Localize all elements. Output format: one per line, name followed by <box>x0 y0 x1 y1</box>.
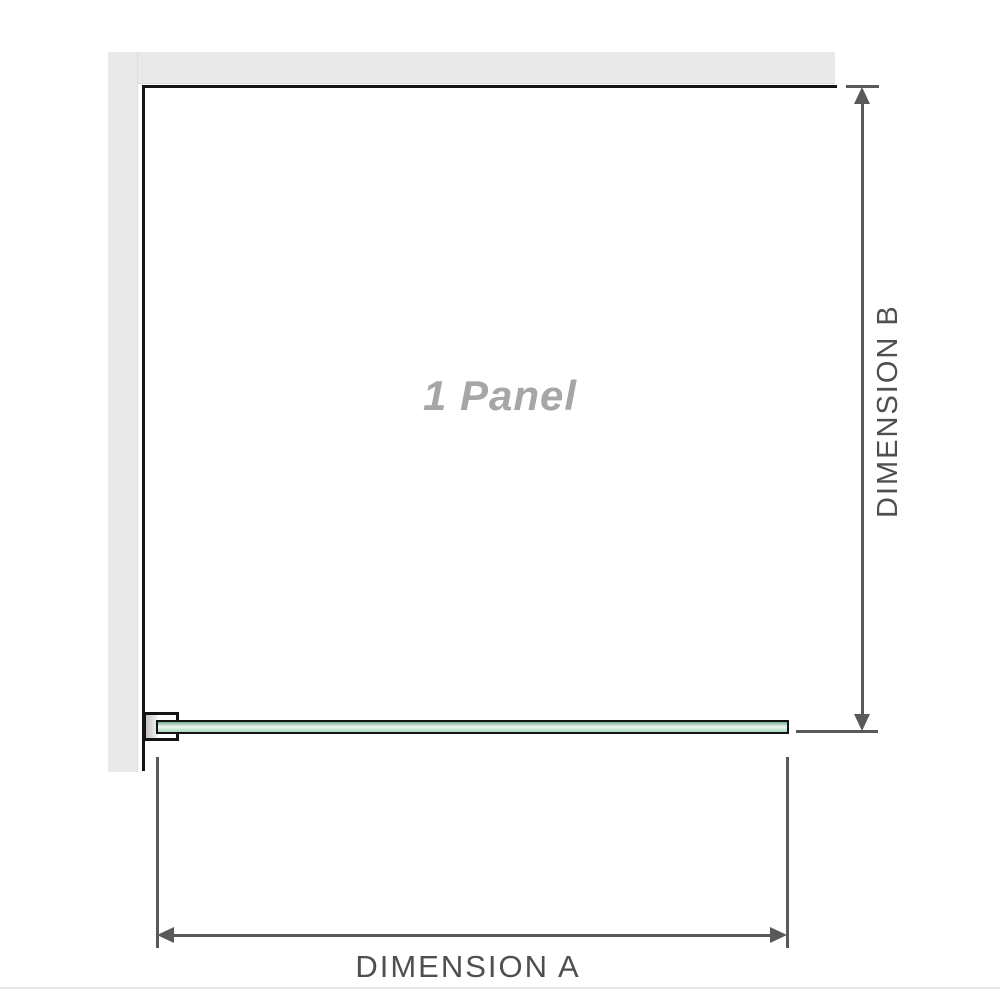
dimension-a-line <box>170 934 775 937</box>
wall-vertical <box>108 52 138 772</box>
enclosure-border-left <box>142 85 145 771</box>
dimension-a-label: DIMENSION A <box>266 948 670 986</box>
wall-horizontal <box>108 52 835 84</box>
panel-count-label: 1 Panel <box>300 368 700 424</box>
arrow-up-icon <box>854 87 870 104</box>
dimension-b-label: DIMENSION B <box>873 318 903 518</box>
dimension-b-line <box>861 98 864 718</box>
arrow-right-icon <box>770 927 787 943</box>
arrow-left-icon <box>157 927 174 943</box>
enclosure-border-top <box>142 85 837 88</box>
bottom-divider <box>0 987 1000 989</box>
dimension-a-extension-left <box>156 757 159 948</box>
arrow-down-icon <box>854 714 870 731</box>
glass-panel <box>156 720 789 734</box>
dimension-a-extension-right <box>786 757 789 948</box>
shower-panel-diagram: 1 Panel DIMENSION B DIMENSION A <box>0 0 1000 1000</box>
